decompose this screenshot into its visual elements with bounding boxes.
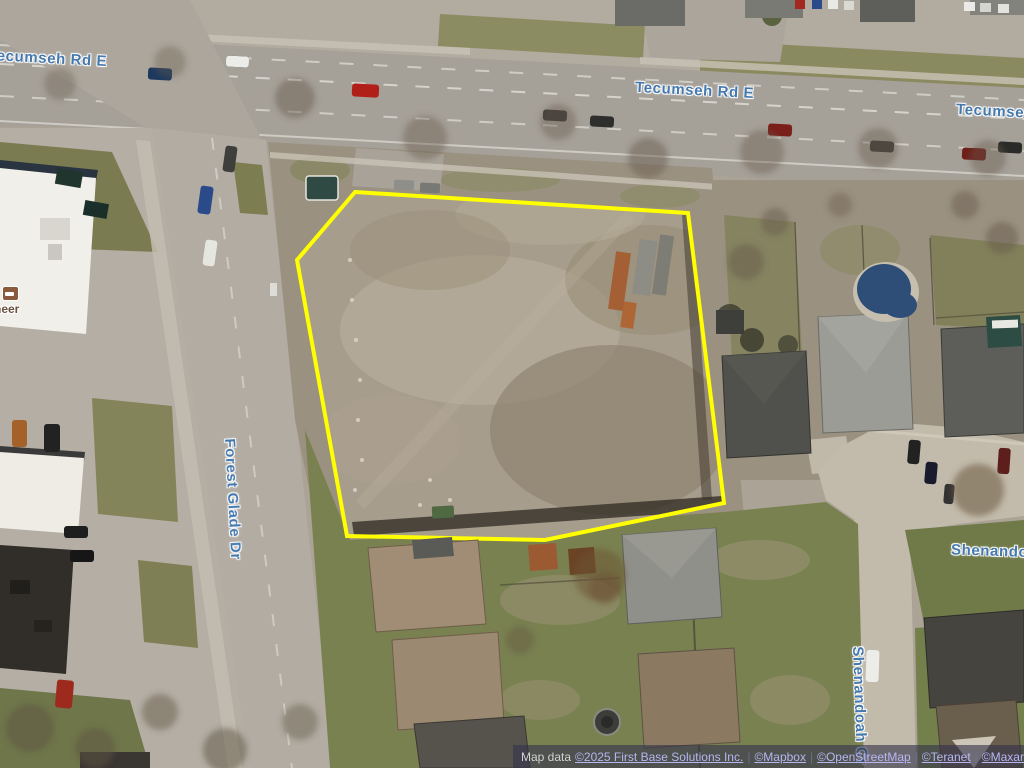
attribution-link-maxar[interactable]: ©Maxar	[982, 750, 1024, 764]
parcel	[297, 185, 735, 540]
satellite-imagery	[0, 0, 1024, 768]
attribution-link-first-base[interactable]: ©2025 First Base Solutions Inc.	[575, 750, 743, 764]
attribution-link-teranet[interactable]: ©Teranet	[922, 750, 971, 764]
attribution-separator: |	[810, 750, 813, 764]
attribution-separator: |	[747, 750, 750, 764]
attribution-bar: Map data ©2025 First Base Solutions Inc.…	[513, 745, 1024, 768]
lodging-icon	[2, 286, 19, 301]
map-canvas[interactable]: Tecumseh Rd E Tecumseh Rd E Tecumseh Rd …	[0, 0, 1024, 768]
attribution-link-openstreetmap[interactable]: ©OpenStreetMap	[817, 750, 911, 764]
poi-label: neer	[0, 302, 54, 316]
attribution-separator: |	[915, 750, 918, 764]
attribution-prefix: Map data	[521, 750, 571, 764]
attribution-separator: |	[975, 750, 978, 764]
poi-marker[interactable]: neer	[0, 286, 54, 316]
attribution-link-mapbox[interactable]: ©Mapbox	[754, 750, 806, 764]
road-label-shenandoah-east: Shenandoah	[951, 541, 1024, 561]
